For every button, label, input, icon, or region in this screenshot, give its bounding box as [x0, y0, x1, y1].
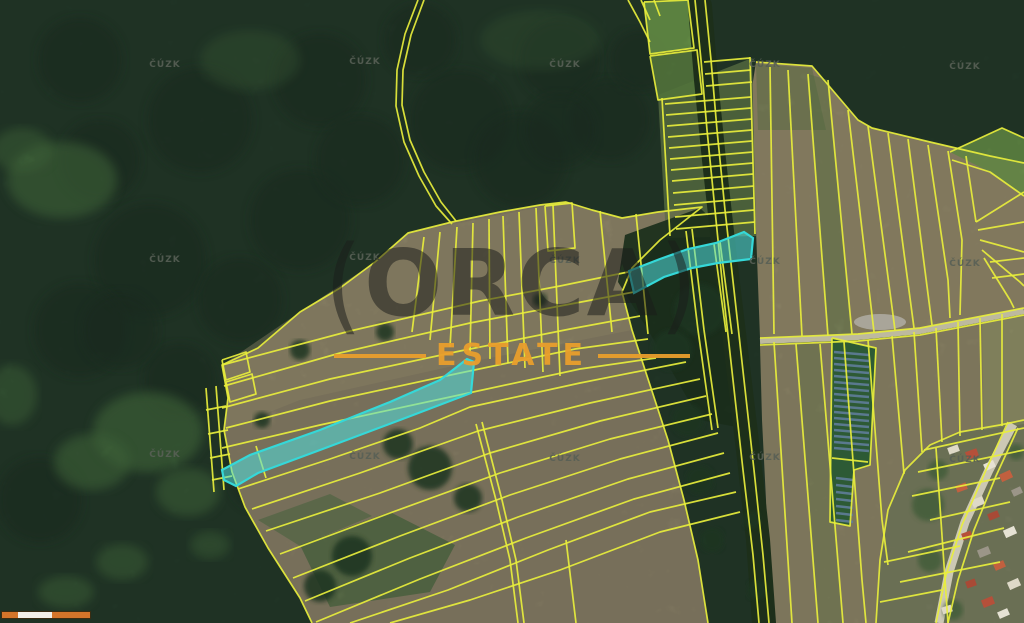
farmstead-area [854, 314, 906, 330]
texture-overlay [0, 0, 1024, 623]
scale-bar-segment-1 [2, 612, 18, 618]
map-screenshot: ČÚZKČÚZKČÚZKČÚZKČÚZKČÚZKČÚZKČÚZKČÚZKČÚZK… [0, 0, 1024, 623]
map-canvas[interactable] [0, 0, 1024, 623]
scale-bar-segment-3 [52, 612, 90, 618]
scale-bar-segment-2 [18, 612, 52, 618]
map-scale-bar [1, 611, 91, 619]
